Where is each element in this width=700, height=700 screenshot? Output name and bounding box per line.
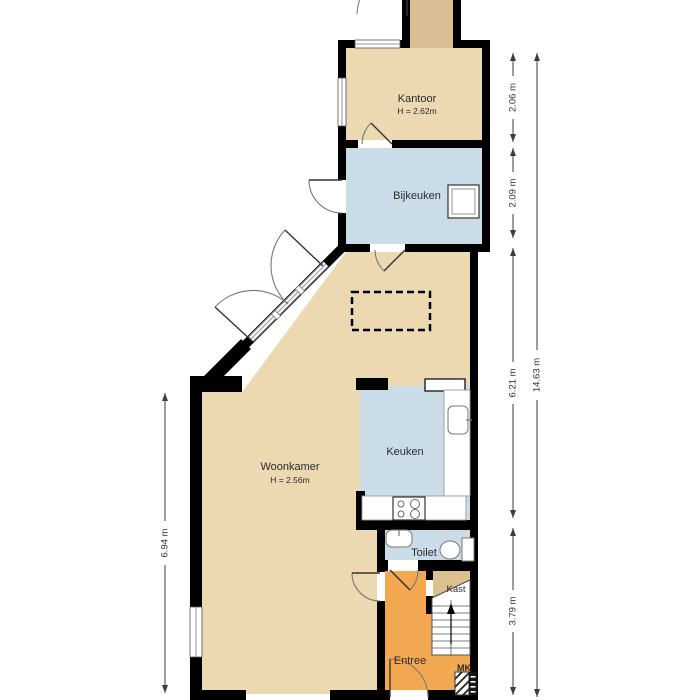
front-wall-mid: [330, 690, 386, 700]
bijkeuken-side-door-swing: [309, 180, 342, 213]
dimension-2-09: 2.09 m: [508, 148, 519, 238]
woonkamer-entree-door-opening: [377, 572, 385, 601]
svg-text:14.63 m: 14.63 m: [532, 358, 543, 392]
dimension-3-79: 3.79 m: [508, 528, 519, 695]
dimension-6-94: 6.94 m: [160, 393, 171, 693]
woonkamer-label: Woonkamer: [260, 461, 319, 473]
svg-text:2.09 m: 2.09 m: [508, 178, 519, 207]
rear-door-swing: [357, 0, 407, 16]
bijkeuken-side-door-opening: [338, 180, 346, 213]
entree-label: Entree: [394, 655, 426, 667]
kantoor-door-opening: [358, 140, 392, 148]
svg-text:6.21 m: 6.21 m: [508, 368, 519, 397]
front-door-opening: [390, 690, 428, 700]
front-wall-left: [190, 690, 246, 700]
woonkamer-height-label: H = 2.56m: [270, 475, 309, 485]
washing-machine: [448, 185, 479, 218]
kitchen-cupboard: [425, 379, 465, 391]
dimension-total: 14.63 m: [532, 53, 543, 697]
kantoor-left-window: [338, 78, 346, 126]
svg-text:3.79 m: 3.79 m: [508, 596, 519, 625]
keuken-label: Keuken: [386, 446, 423, 458]
upper-right-exterior-wall: [482, 40, 490, 252]
floorplan-canvas: Kantoor H = 2.62m Bijkeuken Woonkamer H …: [0, 0, 700, 700]
keuken-bottom-wall: [356, 520, 478, 530]
hand-basin: [386, 530, 412, 547]
woonkamer-left-window: [190, 607, 202, 657]
dimension-6-21: 6.21 m: [508, 248, 519, 518]
stove: [393, 497, 425, 520]
kantoor-label: Kantoor: [398, 93, 437, 105]
svg-text:2.06 m: 2.06 m: [508, 83, 519, 112]
passage-opening: [410, 40, 453, 48]
keuken-top-wall: [356, 378, 388, 390]
kast-door-opening: [426, 580, 433, 596]
kantoor-top-window: [355, 40, 400, 48]
front-wall-entree-left: [378, 690, 390, 700]
lower-right-exterior-wall: [470, 252, 478, 694]
upper-left-exterior-wall: [338, 40, 346, 252]
bijkeuken-bottom-wall: [338, 244, 490, 252]
toilet-door-opening: [388, 560, 418, 571]
toilet-label: Toilet: [411, 547, 437, 559]
mk-label: MK: [457, 663, 471, 673]
floorplan-svg: Kantoor H = 2.62m Bijkeuken Woonkamer H …: [0, 0, 700, 700]
svg-text:6.94 m: 6.94 m: [160, 528, 171, 557]
dimension-2-06: 2.06 m: [508, 53, 519, 142]
bijkeuken-label: Bijkeuken: [393, 190, 441, 202]
kast-label: Kast: [446, 584, 465, 595]
kitchen-sink: [448, 406, 472, 434]
kantoor-height-label: H = 2.62m: [397, 106, 436, 116]
